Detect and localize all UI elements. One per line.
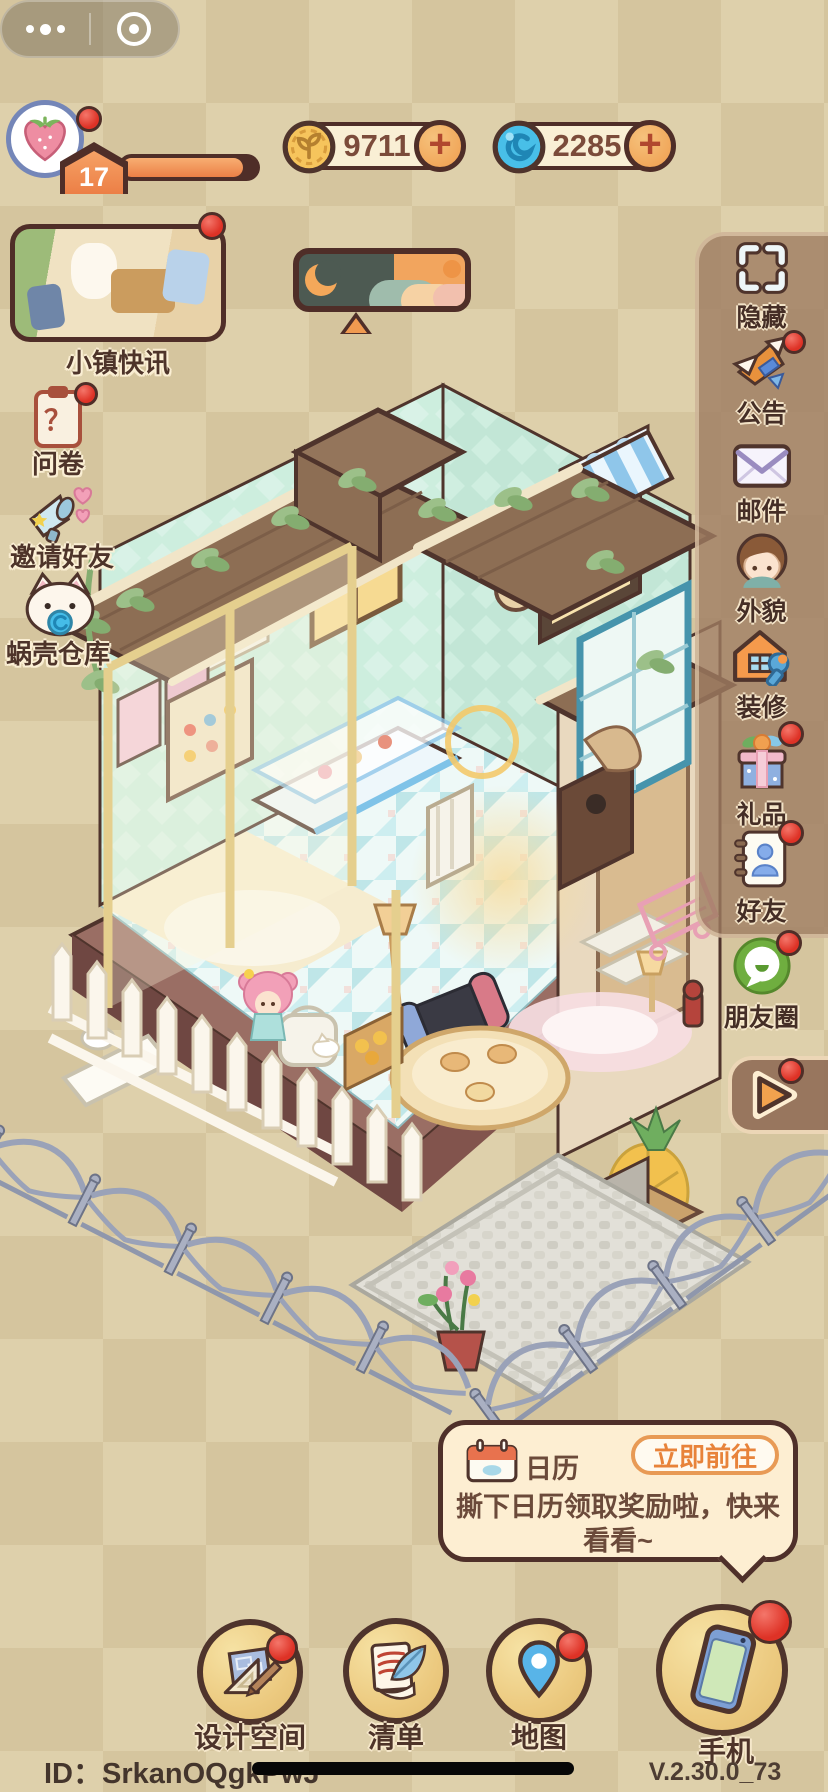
survey-badge: [74, 382, 98, 406]
cloud-icon: [433, 284, 471, 312]
mail-label: 邮件: [736, 492, 786, 528]
calendar-icon: [465, 1437, 519, 1485]
design-space-badge: [266, 1632, 298, 1664]
menu-item-hide[interactable]: 隐藏: [695, 240, 828, 334]
menu-item-announcement[interactable]: 公告: [695, 334, 828, 430]
town-news-banner[interactable]: [10, 224, 226, 342]
checklist-label: 清单: [346, 1716, 446, 1756]
decorate-label: 装修: [736, 688, 786, 724]
news-badge: [198, 212, 226, 240]
sun-icon: [443, 260, 461, 278]
notice-title: 日历: [525, 1447, 579, 1486]
checklist-icon: [363, 1638, 429, 1704]
map-label: 地图: [489, 1716, 589, 1756]
gift-badge: [778, 721, 804, 747]
invite-friends-label: 邀请好友: [0, 543, 124, 572]
hide-brackets-icon: [734, 240, 790, 296]
friends-label: 好友: [736, 892, 786, 928]
shell-amount: 2285: [544, 126, 630, 166]
moments-label: 朋友圈: [724, 998, 799, 1034]
gold-coin-icon: [280, 118, 338, 176]
home-indicator[interactable]: [252, 1762, 574, 1775]
coin-currency[interactable]: 9711: [288, 122, 458, 170]
coin-amount: 9711: [334, 126, 420, 166]
menu-item-friends[interactable]: 好友: [695, 828, 828, 928]
version-text: V.2.30.0_73: [630, 1758, 800, 1787]
calendar-notice-bubble[interactable]: 日历 立即前往 撕下日历领取奖励啦，快来看看~: [438, 1420, 798, 1562]
hide-label: 隐藏: [736, 298, 786, 334]
moon-icon: [305, 264, 337, 296]
invite-friends-button[interactable]: [24, 484, 94, 544]
question-mark-glyph: ？: [44, 399, 72, 439]
add-coin-button[interactable]: [414, 120, 466, 172]
news-art: [26, 283, 66, 331]
town-news-label: 小镇快讯: [10, 349, 226, 378]
time-pointer-fill: [345, 318, 367, 333]
day-night-bar[interactable]: [293, 248, 471, 312]
menu-item-decorate[interactable]: 装修: [695, 626, 828, 724]
news-art-chair: [162, 248, 211, 305]
avatar-badge: [76, 106, 102, 132]
add-shell-button[interactable]: [624, 120, 676, 172]
mail-envelope-icon: [732, 442, 792, 490]
go-now-button[interactable]: 立即前往: [631, 1435, 779, 1475]
menu-item-gift[interactable]: 礼品: [695, 731, 828, 831]
checklist-button[interactable]: [343, 1618, 449, 1724]
menu-item-mail[interactable]: 邮件: [695, 442, 828, 528]
moments-badge: [776, 930, 802, 956]
menu-item-moments[interactable]: 朋友圈: [695, 936, 828, 1034]
announcement-label: 公告: [736, 394, 786, 430]
shell-swirl-icon: [490, 118, 548, 176]
announcement-badge: [782, 330, 806, 354]
xp-fill: [122, 158, 243, 177]
survey-label: 问卷: [8, 450, 108, 479]
map-badge: [556, 1630, 588, 1662]
game-screen: 17 9711 2285: [0, 0, 828, 1792]
shell-warehouse-button[interactable]: [20, 570, 98, 638]
decorate-house-wrench-icon: [731, 626, 793, 686]
level-value: 17: [65, 151, 123, 194]
menu-item-appearance[interactable]: 外貌: [695, 532, 828, 628]
friends-badge: [778, 820, 804, 846]
strawberry-icon: [19, 113, 71, 165]
appearance-avatar-icon: [733, 532, 791, 590]
phone-badge: [748, 1600, 792, 1644]
play-tab-badge: [778, 1058, 804, 1084]
xp-bar: [118, 154, 260, 181]
shell-currency[interactable]: 2285: [498, 122, 668, 170]
notice-message: 撕下日历领取奖励啦，快来看看~: [455, 1491, 781, 1559]
shell-warehouse-label: 蜗壳仓库: [0, 640, 116, 669]
appearance-label: 外貌: [736, 592, 786, 628]
